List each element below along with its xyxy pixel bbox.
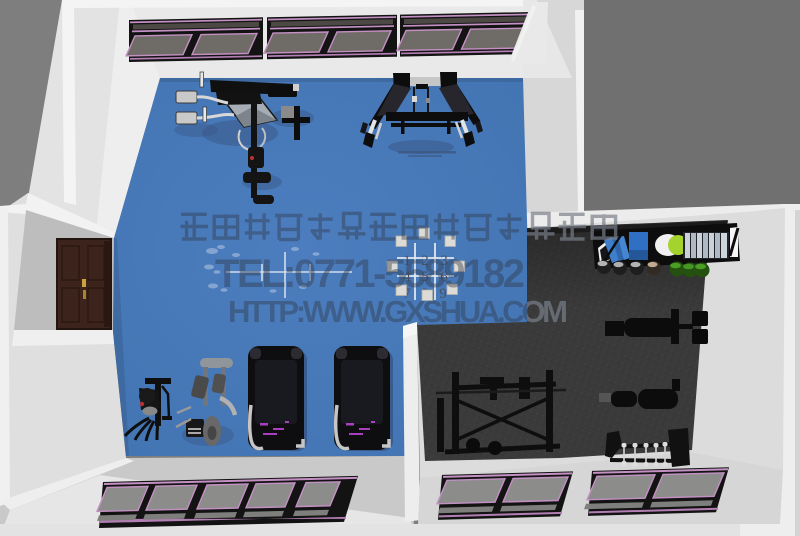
svg-text:TEL:0771-5589182: TEL:0771-5589182 [215,252,525,296]
